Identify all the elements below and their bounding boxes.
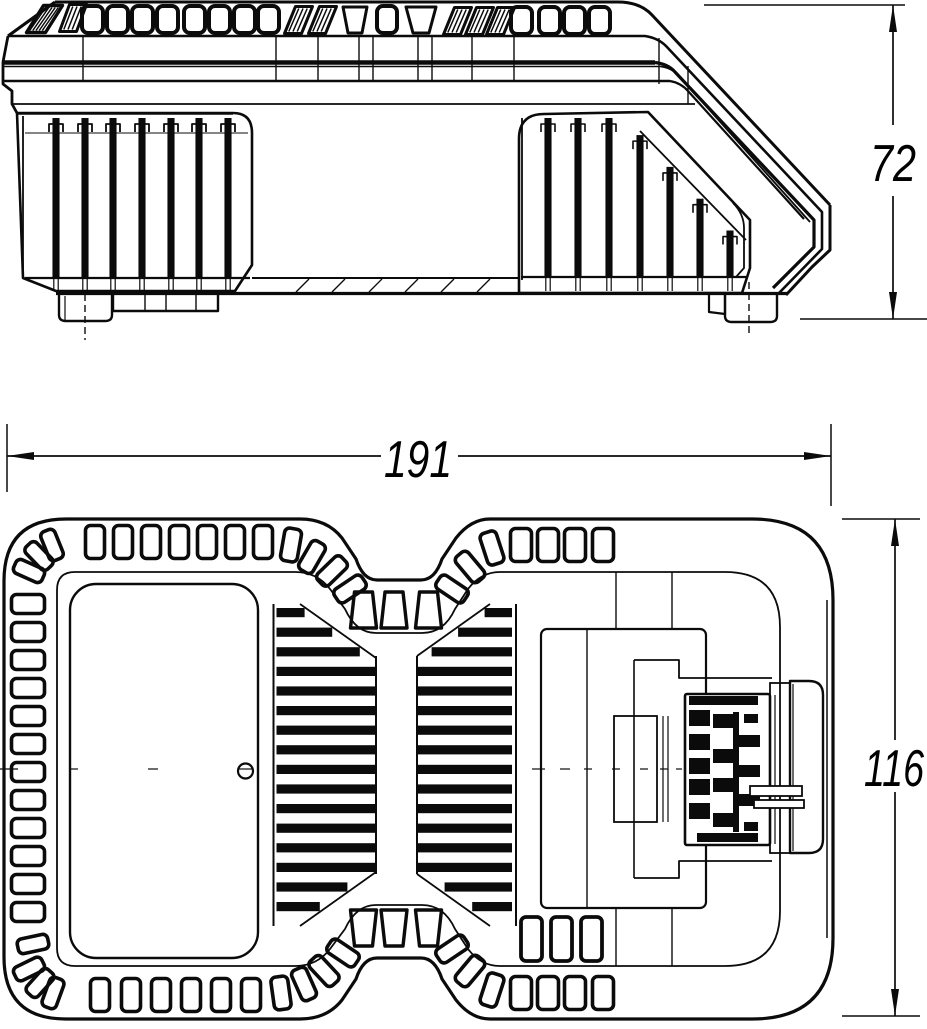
svg-text:191: 191: [384, 431, 452, 489]
svg-text:116: 116: [864, 740, 924, 798]
svg-text:72: 72: [870, 135, 916, 193]
